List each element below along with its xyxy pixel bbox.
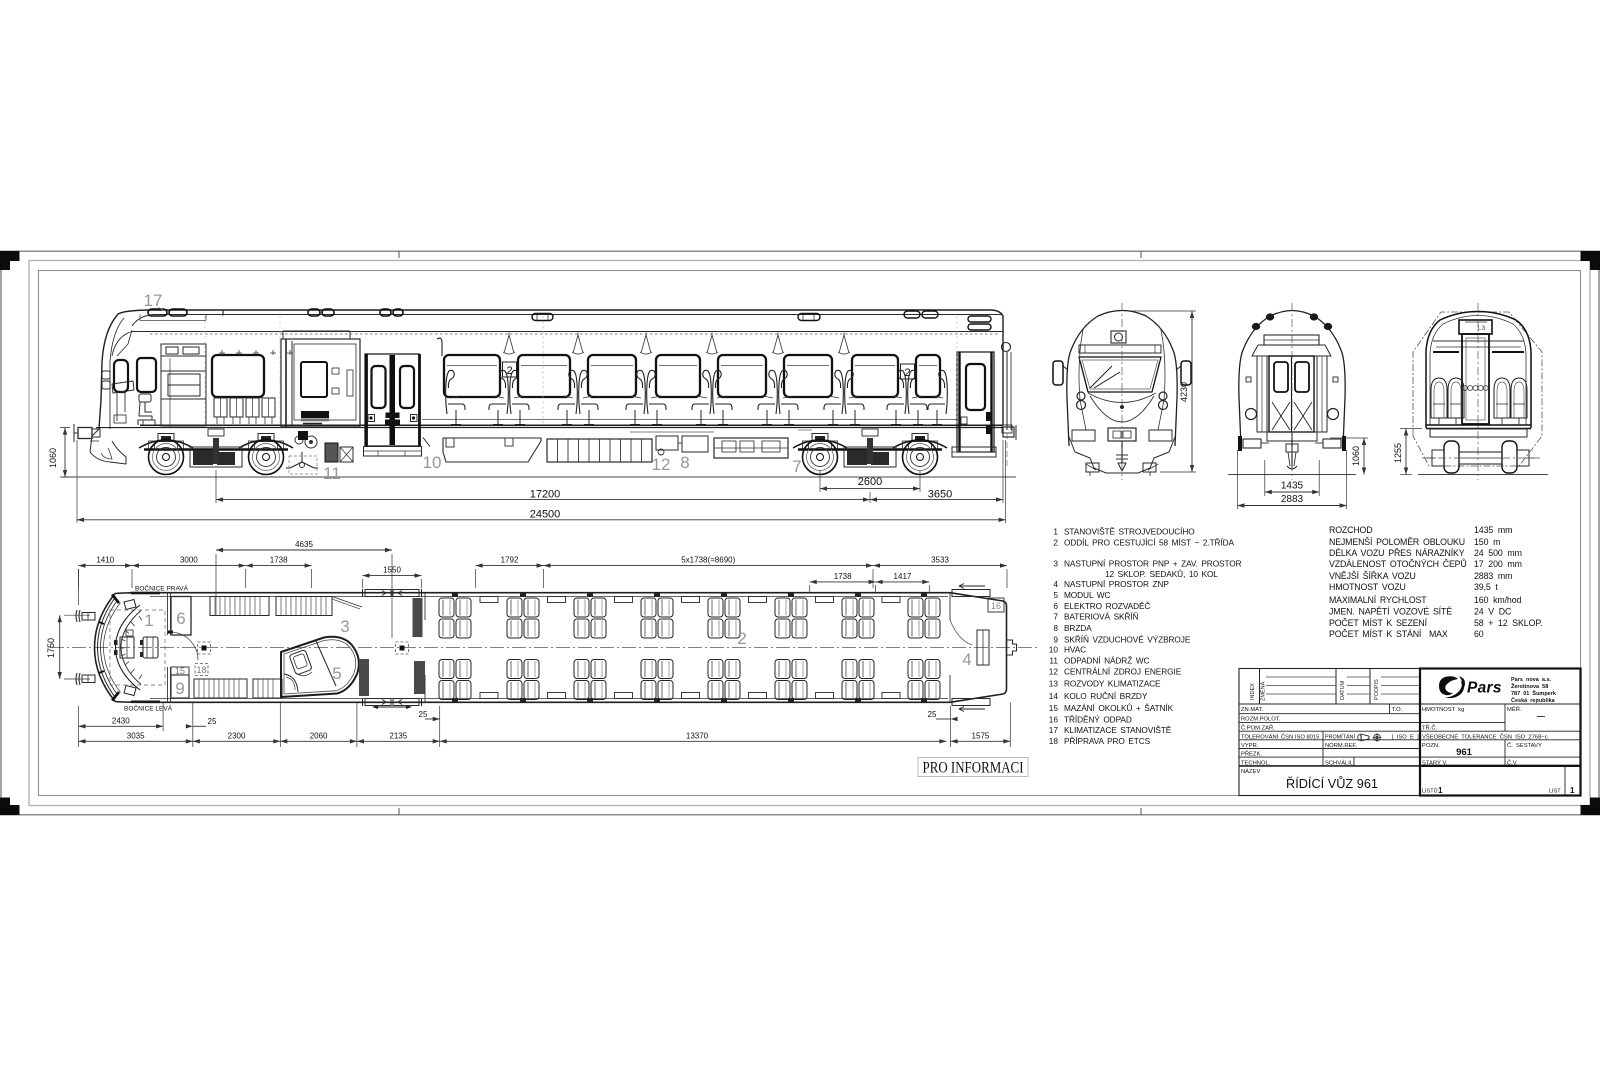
svg-text:15: 15 xyxy=(1049,703,1059,713)
svg-text:160 km/hod: 160 km/hod xyxy=(1474,595,1522,605)
svg-text:HMOTNOST VOZU: HMOTNOST VOZU xyxy=(1329,582,1406,592)
svg-text:NASTUPNÍ PROSTOR ZNP: NASTUPNÍ PROSTOR ZNP xyxy=(1064,579,1169,589)
svg-text:25: 25 xyxy=(419,710,428,719)
svg-text:8: 8 xyxy=(680,453,689,472)
svg-text:1417: 1417 xyxy=(894,572,912,581)
svg-text:18: 18 xyxy=(196,665,206,675)
svg-text:5x1738(=8690): 5x1738(=8690) xyxy=(681,556,735,565)
svg-text:POČET MÍST K SEZENÍ: POČET MÍST K SEZENÍ xyxy=(1329,618,1428,628)
svg-text:PRO INFORMACI: PRO INFORMACI xyxy=(923,760,1024,777)
svg-text:16: 16 xyxy=(991,601,1001,611)
svg-text:POZN.: POZN. xyxy=(1422,743,1440,749)
svg-text:1738: 1738 xyxy=(270,556,288,565)
svg-text:[ ISO E ]: [ ISO E ] xyxy=(1392,734,1419,740)
svg-text:11: 11 xyxy=(323,464,341,483)
svg-text:2430: 2430 xyxy=(112,716,130,725)
svg-text:17: 17 xyxy=(144,291,163,310)
svg-text:1: 1 xyxy=(144,611,153,630)
svg-text:2300: 2300 xyxy=(228,731,246,740)
svg-text:2883 mm: 2883 mm xyxy=(1474,571,1512,581)
svg-text:1750: 1750 xyxy=(46,638,56,658)
svg-text:787 01 Šumperk: 787 01 Šumperk xyxy=(1511,689,1557,697)
svg-text:INDEX: INDEX xyxy=(1250,683,1256,700)
svg-text:ZN.MAT.: ZN.MAT. xyxy=(1241,707,1264,713)
svg-text:1738: 1738 xyxy=(834,572,852,581)
svg-text:TŘÍDĚNÝ ODPAD: TŘÍDĚNÝ ODPAD xyxy=(1064,715,1132,725)
svg-text:3000: 3000 xyxy=(180,556,198,565)
svg-text:18: 18 xyxy=(1049,736,1059,746)
svg-text:ZMĚNA: ZMĚNA xyxy=(1259,681,1267,701)
svg-text:2: 2 xyxy=(1053,538,1058,548)
svg-text:5: 5 xyxy=(332,664,341,683)
svg-text:BOČNICE LEVÁ: BOČNICE LEVÁ xyxy=(124,704,173,713)
svg-text:ŘÍDÍCÍ VŮZ 961: ŘÍDÍCÍ VŮZ 961 xyxy=(1286,776,1378,791)
svg-text:VYPR.: VYPR. xyxy=(1241,743,1259,749)
svg-text:—: — xyxy=(1537,712,1545,721)
svg-text:25: 25 xyxy=(928,710,937,719)
svg-text:NASTUPNÍ PROSTOR PNP + ZAV. PR: NASTUPNÍ PROSTOR PNP + ZAV. PROSTOR xyxy=(1064,558,1242,568)
svg-text:JMEN. NAPĚTÍ VOZOVÉ SÍTĚ: JMEN. NAPĚTÍ VOZOVÉ SÍTĚ xyxy=(1329,607,1452,617)
svg-text:TOLEROVÁNÍ: TOLEROVÁNÍ xyxy=(1241,733,1279,740)
svg-text:1: 1 xyxy=(1570,786,1575,795)
svg-text:PODPIS: PODPIS xyxy=(1374,679,1380,700)
svg-text:7: 7 xyxy=(792,457,801,476)
svg-text:ČSN ISO 8015: ČSN ISO 8015 xyxy=(1281,733,1319,740)
svg-text:NEJMENŠÍ POLOMĚR OBLOUKU: NEJMENŠÍ POLOMĚR OBLOUKU xyxy=(1329,537,1465,547)
svg-text:4230: 4230 xyxy=(1179,382,1189,402)
svg-text:T.O.: T.O. xyxy=(1392,707,1403,713)
svg-text:7: 7 xyxy=(1053,612,1058,622)
svg-text:1792: 1792 xyxy=(501,556,519,565)
svg-text:2135: 2135 xyxy=(389,731,407,740)
svg-text:1255: 1255 xyxy=(1393,443,1403,463)
svg-text:POČET MÍST K STÁNÍ MAX: POČET MÍST K STÁNÍ MAX xyxy=(1329,629,1448,639)
svg-text:9: 9 xyxy=(175,679,184,698)
svg-text:ROZCHOD: ROZCHOD xyxy=(1329,525,1372,535)
svg-text:1060: 1060 xyxy=(1351,446,1361,466)
svg-text:Žerotínova 58: Žerotínova 58 xyxy=(1511,682,1548,690)
svg-text:LIST: LIST xyxy=(1549,789,1561,795)
svg-text:ODPADNÍ NÁDRŽ WC: ODPADNÍ NÁDRŽ WC xyxy=(1064,656,1150,666)
svg-text:MAZÁNÍ OKOLKŮ + ŠATNÍK: MAZÁNÍ OKOLKŮ + ŠATNÍK xyxy=(1064,702,1174,713)
svg-text:SKŘÍŇ VZDUCHOVÉ VÝZBROJE: SKŘÍŇ VZDUCHOVÉ VÝZBROJE xyxy=(1064,634,1191,644)
svg-text:2: 2 xyxy=(737,629,746,648)
svg-text:Pars nova a.s.: Pars nova a.s. xyxy=(1511,677,1552,683)
svg-text:24 500 mm: 24 500 mm xyxy=(1474,548,1522,558)
svg-text:24500: 24500 xyxy=(530,509,561,521)
svg-text:PŘEZK.: PŘEZK. xyxy=(1241,750,1262,758)
svg-text:STARÝ V.: STARÝ V. xyxy=(1422,759,1448,766)
svg-text:3650: 3650 xyxy=(928,489,952,501)
svg-text:PROMÍTÁNÍ: PROMÍTÁNÍ xyxy=(1325,733,1355,740)
svg-text:Č.POM.ZAŘ.: Č.POM.ZAŘ. xyxy=(1241,724,1275,732)
svg-text:13370: 13370 xyxy=(686,731,709,740)
svg-text:1550: 1550 xyxy=(383,566,401,575)
svg-text:60: 60 xyxy=(1474,629,1484,639)
svg-text:14: 14 xyxy=(1049,691,1059,701)
svg-text:ODDÍL PRO CESTUJÍCÍ 58 MÍST −: ODDÍL PRO CESTUJÍCÍ 58 MÍST − 2.TŘÍDA xyxy=(1064,538,1235,548)
svg-text:PŘÍPRAVA PRO ETCS: PŘÍPRAVA PRO ETCS xyxy=(1064,736,1151,746)
svg-text:12: 12 xyxy=(1049,667,1059,677)
svg-text:DATUM: DATUM xyxy=(1340,680,1346,700)
svg-text:ROZM.POLOT.: ROZM.POLOT. xyxy=(1241,717,1281,723)
svg-text:VNĚJŠÍ ŠÍŘKA VOZU: VNĚJŠÍ ŠÍŘKA VOZU xyxy=(1329,571,1416,581)
svg-text:17: 17 xyxy=(1049,725,1059,735)
svg-text:3533: 3533 xyxy=(931,556,949,565)
svg-text:13: 13 xyxy=(1049,678,1059,688)
svg-text:CENTRÁLNÍ ZDROJ ENERGIE: CENTRÁLNÍ ZDROJ ENERGIE xyxy=(1064,667,1182,677)
svg-text:DÉLKA VOZU PŘES NÁRAZNÍKY: DÉLKA VOZU PŘES NÁRAZNÍKY xyxy=(1329,548,1465,558)
svg-text:BOČNICE PRAVÁ: BOČNICE PRAVÁ xyxy=(135,584,189,593)
svg-text:STANOVIŠTĚ STROJVEDOUCÍHO: STANOVIŠTĚ STROJVEDOUCÍHO xyxy=(1064,527,1195,537)
svg-text:1: 1 xyxy=(1053,527,1058,537)
svg-text:10: 10 xyxy=(423,453,442,472)
svg-text:1435 mm: 1435 mm xyxy=(1474,525,1512,535)
svg-text:KLIMATIZACE STANOVIŠTĚ: KLIMATIZACE STANOVIŠTĚ xyxy=(1064,725,1172,735)
svg-text:6: 6 xyxy=(1053,601,1058,611)
svg-text:39,5 t: 39,5 t xyxy=(1474,582,1498,592)
svg-text:2883: 2883 xyxy=(1281,494,1304,505)
svg-text:961: 961 xyxy=(1456,747,1473,758)
svg-text:NÁZEV: NÁZEV xyxy=(1241,768,1260,775)
svg-text:4: 4 xyxy=(962,650,971,669)
svg-text:TECHNOL.: TECHNOL. xyxy=(1241,760,1271,766)
svg-text:Pars: Pars xyxy=(1467,680,1502,697)
svg-text:HVAC: HVAC xyxy=(1064,645,1086,655)
svg-text:1575: 1575 xyxy=(972,731,990,740)
svg-text:10: 10 xyxy=(1049,645,1059,655)
svg-text:MODUL WC: MODUL WC xyxy=(1064,590,1110,600)
svg-text:ELEKTRO ROZVADĚČ: ELEKTRO ROZVADĚČ xyxy=(1064,601,1150,611)
svg-text:2060: 2060 xyxy=(310,731,328,740)
svg-text:9: 9 xyxy=(1053,634,1058,644)
svg-text:VZDÁLENOST OTOČNÝCH ČEPŮ: VZDÁLENOST OTOČNÝCH ČEPŮ xyxy=(1329,558,1467,569)
svg-text:3: 3 xyxy=(1053,558,1058,568)
svg-text:15: 15 xyxy=(175,666,185,676)
svg-text:MĚŘ.: MĚŘ. xyxy=(1507,705,1522,713)
svg-text:6: 6 xyxy=(176,609,185,628)
svg-text:3035: 3035 xyxy=(127,731,145,740)
svg-text:BRZDA: BRZDA xyxy=(1064,623,1092,633)
svg-text:KOLO RUČNÍ BRZDY: KOLO RUČNÍ BRZDY xyxy=(1064,691,1148,701)
svg-text:MAXIMALNÍ RYCHLOST: MAXIMALNÍ RYCHLOST xyxy=(1329,595,1427,605)
svg-text:17 200 mm: 17 200 mm xyxy=(1474,559,1522,569)
svg-text:25: 25 xyxy=(208,717,217,726)
svg-text:8: 8 xyxy=(1053,623,1058,633)
svg-text:17200: 17200 xyxy=(530,489,561,501)
svg-text:1: 1 xyxy=(1438,786,1443,795)
svg-text:Česká republika: Česká republika xyxy=(1511,697,1556,704)
svg-text:2600: 2600 xyxy=(858,476,882,488)
svg-text:ROZVODY KLIMATIZACE: ROZVODY KLIMATIZACE xyxy=(1064,678,1161,688)
svg-text:SCHVÁLIL: SCHVÁLIL xyxy=(1325,759,1354,766)
svg-text:3: 3 xyxy=(340,617,349,636)
svg-text:1435: 1435 xyxy=(1281,481,1304,492)
svg-text:VŠEOBECNÉ TOLERANCE ČSN ISO: VŠEOBECNÉ TOLERANCE ČSN ISO 2768−c xyxy=(1422,733,1548,740)
svg-text:NORM.REF.: NORM.REF. xyxy=(1325,743,1357,749)
svg-text:Č. SESTAVY: Č. SESTAVY xyxy=(1507,742,1542,749)
svg-text:11: 11 xyxy=(1049,656,1058,666)
svg-text:HMOTNOST kg: HMOTNOST kg xyxy=(1422,707,1464,713)
svg-text:16: 16 xyxy=(1049,715,1059,725)
svg-text:12: 12 xyxy=(652,455,671,474)
svg-text:24 V DC: 24 V DC xyxy=(1474,607,1512,617)
svg-text:1060: 1060 xyxy=(48,448,58,468)
svg-text:150 m: 150 m xyxy=(1474,537,1500,547)
svg-text:1410: 1410 xyxy=(96,556,114,565)
svg-text:BATERIOVÁ SKŘÍŇ: BATERIOVÁ SKŘÍŇ xyxy=(1064,612,1139,622)
svg-text:LISTŮ: LISTŮ xyxy=(1422,788,1438,795)
svg-text:TŘ.Č.: TŘ.Č. xyxy=(1422,724,1438,732)
svg-text:4: 4 xyxy=(1053,579,1058,589)
svg-text:12 SKLOP. SEDAKŮ, 10 KOL: 12 SKLOP. SEDAKŮ, 10 KOL xyxy=(1105,568,1218,579)
svg-text:5: 5 xyxy=(1053,590,1058,600)
svg-text:Č.V.: Č.V. xyxy=(1507,759,1518,766)
svg-text:4635: 4635 xyxy=(295,540,313,549)
svg-text:58 + 12 SKLOP.: 58 + 12 SKLOP. xyxy=(1474,618,1542,628)
